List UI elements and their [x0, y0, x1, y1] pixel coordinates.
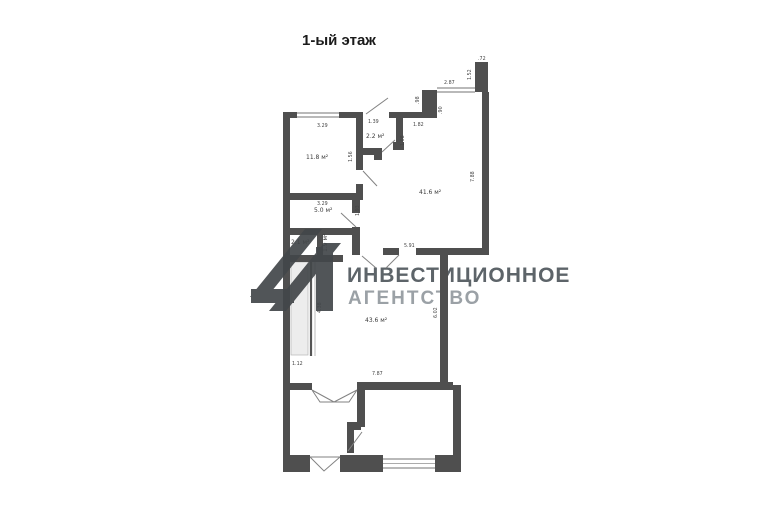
- bay-opening-upper: [312, 390, 357, 402]
- logo-vertical-bar: [316, 247, 333, 311]
- wall-segment: [416, 248, 489, 255]
- dimension-label: .90: [438, 106, 444, 114]
- wall-segment: [283, 193, 363, 200]
- wall-segment: [482, 92, 489, 255]
- watermark-line1: ИНВЕСТИЦИОННОЕ: [347, 264, 570, 287]
- dimension-label: 6.02: [433, 307, 439, 318]
- dimension-labels: .72 1.52 2.87 .98 .90 1.82 3.29 1.39 1.0…: [292, 56, 486, 377]
- wall-segment: [283, 112, 297, 118]
- logo-horizontal-bar: [251, 289, 294, 303]
- dimension-label: .72: [478, 56, 486, 62]
- wall-segment: [283, 455, 310, 472]
- dimension-label: 2.87: [444, 80, 455, 86]
- wall-segment: [347, 422, 361, 430]
- wall-segment: [383, 248, 399, 255]
- door-swing-line: [363, 171, 377, 186]
- dimension-label: 7.87: [372, 371, 383, 377]
- door-swing-line: [366, 98, 388, 114]
- window-bottom: [383, 459, 435, 468]
- dimension-label: 1.52: [467, 69, 473, 80]
- room-label-11-8: 11.8 м²: [306, 154, 329, 161]
- door-swing-line: [341, 213, 356, 227]
- room-label-41-6: 41.6 м²: [419, 189, 442, 196]
- wall-segment: [340, 455, 383, 472]
- room-label-5-0: 5.0 м²: [314, 207, 333, 214]
- wall-segment: [347, 430, 354, 453]
- wall-segment: [440, 255, 448, 385]
- dimension-label: 1.56: [348, 151, 354, 162]
- dimension-label: .98: [415, 96, 421, 104]
- wall-segment: [283, 383, 312, 390]
- dimension-label: 1.12: [292, 361, 303, 367]
- watermark-text: ИНВЕСТИЦИОННОЕ АГЕНТСТВО: [347, 264, 570, 309]
- wall-segment: [357, 382, 453, 390]
- dimension-label: 1.08: [400, 135, 406, 146]
- dimension-label: 1.39: [368, 119, 379, 125]
- wall-segment: [374, 148, 382, 160]
- wall-segment: [357, 390, 365, 427]
- dimension-label: 1.93: [355, 205, 361, 216]
- wall-segment: [435, 455, 461, 472]
- dimension-label: 3.29: [317, 123, 328, 129]
- wall-segment: [356, 112, 363, 170]
- dimension-label: 1.82: [413, 122, 424, 128]
- page-title: 1-ый этаж: [302, 32, 376, 49]
- dimension-label: 7.88: [470, 171, 476, 182]
- window-top-left: [297, 113, 339, 117]
- window-top-right: [437, 88, 475, 92]
- room-label-43-6: 43.6 м²: [365, 317, 388, 324]
- dimension-label: 3.29: [317, 201, 328, 207]
- bay-opening-lower: [310, 457, 340, 471]
- dimension-label: 5.91: [404, 243, 415, 249]
- room-label-2-2: 2.2 м²: [366, 133, 385, 140]
- wall-segment: [475, 62, 488, 92]
- watermark-line2: АГЕНТСТВО: [348, 288, 481, 309]
- wall-segment: [422, 90, 437, 116]
- floorplan-image: 1-ый этаж ИНВЕСТИЦИОННОЕ АГЕНТСТВО: [0, 0, 770, 510]
